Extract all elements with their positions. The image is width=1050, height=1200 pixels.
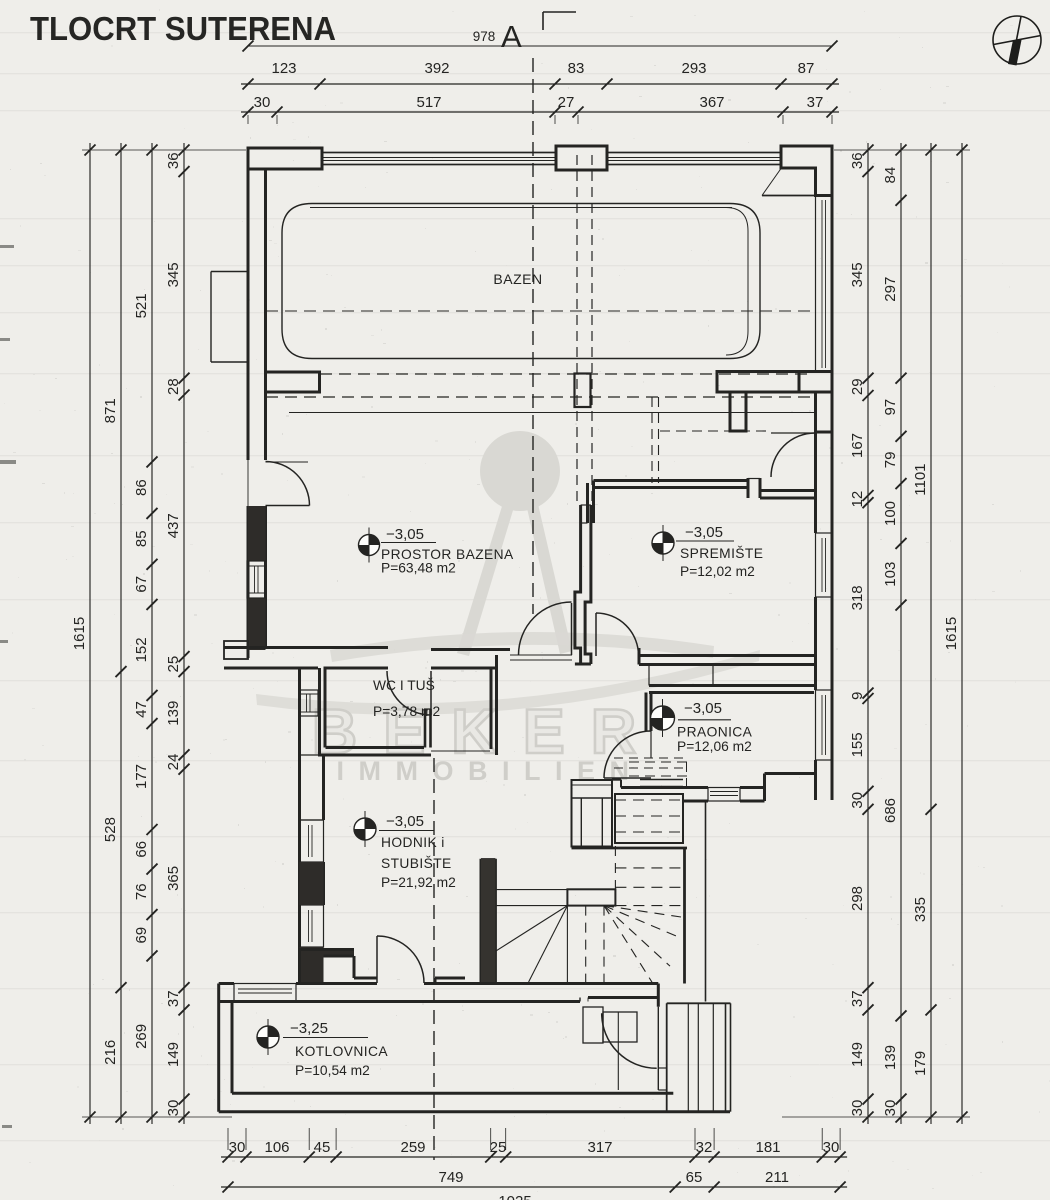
svg-text:86: 86 [133, 479, 150, 496]
svg-text:36: 36 [165, 152, 182, 169]
svg-text:367: 367 [699, 94, 724, 111]
svg-text:IMMOBILIEN: IMMOBILIEN [337, 756, 644, 786]
svg-text:978: 978 [473, 29, 496, 44]
svg-text:P=21,92 m2: P=21,92 m2 [381, 875, 456, 890]
svg-text:47: 47 [133, 701, 150, 718]
svg-text:345: 345 [165, 262, 182, 287]
svg-text:1615: 1615 [71, 617, 88, 650]
svg-text:P=12,06 m2: P=12,06 m2 [677, 739, 752, 754]
svg-text:216: 216 [102, 1040, 119, 1065]
svg-text:P=63,48 m2: P=63,48 m2 [381, 561, 456, 576]
svg-text:30: 30 [882, 1100, 899, 1117]
svg-text:437: 437 [165, 513, 182, 538]
svg-text:345: 345 [849, 262, 866, 287]
svg-text:P=10,54 m2: P=10,54 m2 [295, 1063, 370, 1078]
svg-text:871: 871 [102, 398, 119, 423]
svg-text:149: 149 [165, 1042, 182, 1067]
svg-text:−3,05: −3,05 [386, 526, 424, 543]
svg-text:317: 317 [587, 1139, 612, 1156]
svg-text:97: 97 [882, 399, 899, 416]
svg-text:103: 103 [882, 562, 899, 587]
svg-text:TLOCRT SUTERENA: TLOCRT SUTERENA [30, 11, 336, 48]
svg-text:123: 123 [271, 60, 296, 77]
svg-text:−3,25: −3,25 [290, 1020, 328, 1037]
svg-text:528: 528 [102, 817, 119, 842]
svg-text:45: 45 [314, 1139, 331, 1156]
svg-text:181: 181 [755, 1139, 780, 1156]
svg-text:152: 152 [133, 637, 150, 662]
svg-text:25: 25 [165, 656, 182, 673]
svg-text:−3,05: −3,05 [386, 813, 424, 830]
svg-text:335: 335 [912, 897, 929, 922]
svg-text:67: 67 [133, 576, 150, 593]
svg-text:9: 9 [849, 692, 866, 700]
svg-text:69: 69 [133, 927, 150, 944]
svg-text:32: 32 [696, 1139, 713, 1156]
svg-text:P=12,02 m2: P=12,02 m2 [680, 564, 755, 579]
svg-text:36: 36 [849, 152, 866, 169]
svg-text:−3,05: −3,05 [684, 700, 722, 717]
svg-text:SPREMIŠTE: SPREMIŠTE [680, 545, 763, 561]
svg-text:WC I TUŠ: WC I TUŠ [373, 677, 435, 693]
svg-text:30: 30 [823, 1139, 840, 1156]
svg-text:1101: 1101 [912, 463, 929, 495]
svg-text:211: 211 [765, 1169, 789, 1186]
svg-text:65: 65 [686, 1169, 703, 1186]
svg-text:HODNIK i: HODNIK i [381, 835, 445, 850]
svg-text:30: 30 [849, 792, 866, 809]
svg-text:30: 30 [849, 1100, 866, 1117]
svg-text:297: 297 [882, 277, 899, 302]
svg-text:149: 149 [849, 1042, 866, 1067]
svg-text:1615: 1615 [943, 617, 960, 650]
svg-text:37: 37 [849, 990, 866, 1007]
svg-text:318: 318 [849, 585, 866, 610]
svg-text:30: 30 [165, 1100, 182, 1117]
svg-text:28: 28 [165, 378, 182, 395]
svg-text:−3,05: −3,05 [685, 524, 723, 541]
svg-text:37: 37 [807, 94, 824, 111]
svg-text:KOTLOVNICA: KOTLOVNICA [295, 1044, 388, 1059]
svg-text:106: 106 [264, 1139, 289, 1156]
svg-text:66: 66 [133, 841, 150, 858]
svg-text:25: 25 [490, 1139, 507, 1156]
svg-text:83: 83 [568, 60, 585, 77]
svg-text:392: 392 [424, 60, 449, 77]
svg-text:87: 87 [798, 60, 815, 77]
svg-text:298: 298 [849, 886, 866, 911]
svg-text:A: A [501, 19, 522, 54]
svg-text:259: 259 [400, 1139, 425, 1156]
svg-text:167: 167 [849, 433, 866, 458]
svg-text:30: 30 [254, 94, 271, 111]
svg-text:12: 12 [849, 491, 866, 508]
svg-text:139: 139 [882, 1045, 899, 1070]
svg-text:139: 139 [165, 701, 182, 726]
svg-text:269: 269 [133, 1024, 150, 1049]
svg-text:365: 365 [165, 866, 182, 891]
svg-text:179: 179 [912, 1051, 929, 1076]
svg-text:30: 30 [229, 1139, 246, 1156]
svg-text:100: 100 [882, 501, 899, 526]
svg-text:686: 686 [882, 798, 899, 823]
svg-text:84: 84 [882, 167, 899, 184]
svg-text:155: 155 [849, 732, 866, 757]
svg-text:177: 177 [133, 764, 150, 789]
svg-text:P=3,78 m2: P=3,78 m2 [373, 704, 440, 719]
svg-text:BAZEN: BAZEN [493, 271, 542, 287]
svg-text:293: 293 [681, 60, 706, 77]
svg-text:79: 79 [882, 452, 899, 469]
svg-text:27: 27 [558, 94, 575, 111]
svg-text:STUBIŠTE: STUBIŠTE [381, 855, 452, 871]
svg-text:85: 85 [133, 530, 150, 547]
svg-text:521: 521 [133, 293, 150, 318]
svg-text:29: 29 [849, 378, 866, 395]
svg-text:37: 37 [165, 990, 182, 1007]
svg-text:PRAONICA: PRAONICA [677, 725, 753, 740]
svg-text:517: 517 [416, 94, 441, 111]
svg-text:749: 749 [438, 1169, 463, 1186]
svg-text:24: 24 [165, 754, 182, 771]
svg-text:76: 76 [133, 883, 150, 900]
svg-text:1025: 1025 [498, 1193, 531, 1200]
